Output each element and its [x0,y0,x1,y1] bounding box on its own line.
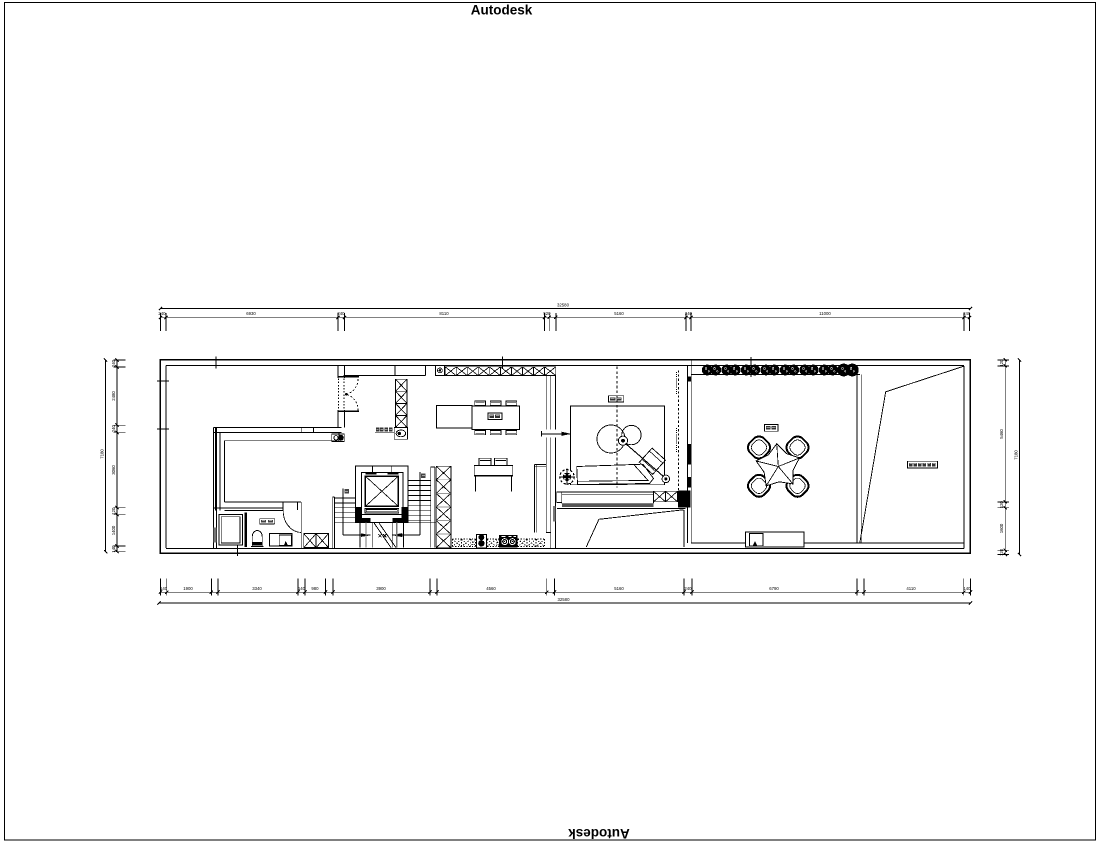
svg-text:7180: 7180 [99,449,104,459]
svg-text:32580: 32580 [557,302,570,307]
svg-text:Autodesk: Autodesk [471,3,533,18]
svg-text:11000: 11000 [819,311,831,316]
svg-text:6790: 6790 [769,586,779,591]
svg-text:240: 240 [158,311,166,316]
svg-text:5460: 5460 [999,429,1004,439]
svg-text:120: 120 [111,507,116,515]
svg-text:520: 520 [543,311,551,316]
svg-text:240: 240 [963,311,971,316]
svg-text:120: 120 [999,548,1004,556]
svg-text:4560: 4560 [486,586,496,591]
svg-text:3900: 3900 [376,586,386,591]
svg-text:6930: 6930 [246,311,256,316]
svg-text:120: 120 [999,359,1004,367]
svg-text:140: 140 [160,586,168,591]
svg-text:240: 240 [111,359,116,367]
svg-text:32580: 32580 [558,597,571,602]
svg-text:5160: 5160 [614,586,624,591]
svg-text:140: 140 [963,586,971,591]
svg-text:980: 980 [311,586,319,591]
svg-text:5160: 5160 [614,311,624,316]
svg-text:4110: 4110 [906,586,916,591]
svg-text:Autodesk: Autodesk [568,826,630,841]
svg-text:120: 120 [999,501,1004,509]
svg-text:240: 240 [685,311,693,316]
svg-text:2480: 2480 [111,391,116,401]
svg-text:140: 140 [298,586,306,591]
svg-text:3340: 3340 [252,586,262,591]
svg-text:1600: 1600 [999,523,1004,533]
svg-text:240: 240 [337,311,345,316]
svg-text:140: 140 [111,545,116,553]
svg-text:240: 240 [684,586,692,591]
svg-text:7180: 7180 [1013,450,1018,460]
svg-text:3060: 3060 [111,465,116,475]
svg-text:1900: 1900 [183,586,193,591]
svg-text:240: 240 [111,425,116,433]
svg-text:8110: 8110 [439,311,449,316]
svg-text:1400: 1400 [111,525,116,535]
